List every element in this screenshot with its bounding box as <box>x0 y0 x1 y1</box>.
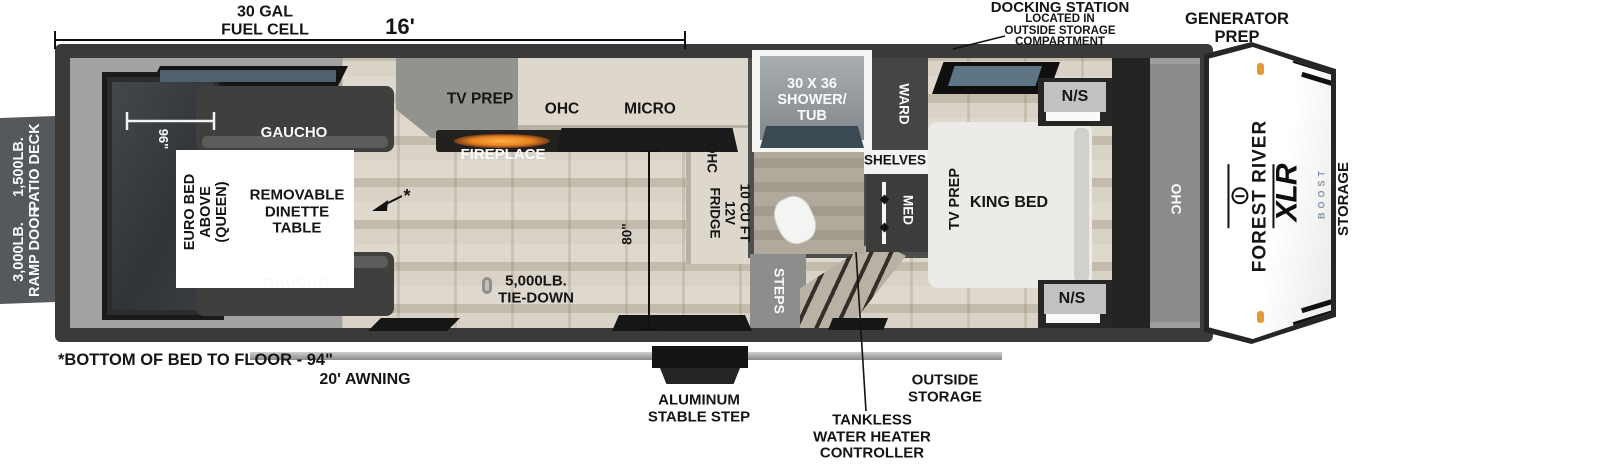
kitchen-overhead-cabinets <box>518 58 750 132</box>
bedroom-wardrobe <box>1112 58 1150 328</box>
medicine-cabinet <box>866 174 928 252</box>
dinette-label: REMOVABLE DINETTE TABLE <box>250 187 345 237</box>
tie-down-label: 5,000LB. TIE-DOWN <box>498 274 574 307</box>
stable-step-label: ALUMINUM STABLE STEP <box>648 393 750 426</box>
bed-floor-note: *BOTTOM OF BED TO FLOOR - 94" <box>58 351 333 369</box>
nightstand-strip <box>1046 314 1100 323</box>
garage-window-glass <box>160 70 336 82</box>
model-trim: BOOST <box>1318 165 1327 222</box>
bedroom-tv-screen <box>948 66 1042 86</box>
length-dimension-label: 16' <box>385 15 415 39</box>
kitchen-ohc-label: OHC <box>545 100 579 117</box>
med-label: MED <box>900 195 915 225</box>
tankless-label: TANKLESS WATER HEATER CONTROLLER <box>813 412 931 462</box>
gaucho-sofa-top <box>196 86 394 152</box>
window <box>828 318 888 330</box>
floorplan-diagram: FOREST RIVER XLR BOOST 30 GAL FUEL CELL … <box>0 0 1600 465</box>
outside-storage-label: OUTSIDE STORAGE <box>908 373 982 406</box>
dinette-note-marker: * <box>403 187 410 207</box>
awning-rail <box>250 352 1002 360</box>
gaucho-top-label: GAUCHO <box>261 125 328 142</box>
awning-label: 20' AWNING <box>319 371 410 389</box>
patio-deck-label: 1,500LB. PATIO DECK <box>12 123 44 210</box>
nightstand-top-label: N/S <box>1062 88 1089 106</box>
bedroom-ohc-label: OHC <box>1168 183 1183 214</box>
clearance-light-icon <box>1257 63 1264 75</box>
model-logo: XLR BOOST <box>1256 165 1345 222</box>
shelves-label: SHELVES <box>864 154 926 169</box>
tv-prep-bedroom-label: TV PREP <box>948 168 964 230</box>
aluminum-step <box>652 346 748 368</box>
window <box>368 318 460 331</box>
steps-label: STEPS <box>771 268 786 314</box>
ward-label: WARD <box>896 83 911 124</box>
nightstand-strip <box>1046 112 1100 121</box>
entry-door-mat <box>612 315 752 331</box>
tub-edge <box>760 126 864 148</box>
forest-river-emblem-icon <box>1231 188 1248 205</box>
tv-prep-living-label: TV PREP <box>447 90 513 107</box>
bed-pillows <box>1074 128 1089 282</box>
garage-width-label: 96" <box>156 129 170 150</box>
clearance-light-icon <box>1257 311 1264 323</box>
king-bed-label: KING BED <box>970 194 1048 212</box>
shower-label: 30 X 36 SHOWER/ TUB <box>777 77 846 125</box>
pantry-ohc-label: OHC <box>704 143 719 173</box>
front-storage-label: STORAGE <box>1336 162 1353 236</box>
medicine-cabinet-rail <box>882 182 886 244</box>
docking-station-detail: LOCATED IN OUTSIDE STORAGE COMPARTMENT <box>1005 14 1116 49</box>
ramp-door-label: 3,000LB. RAMP DOOR <box>12 207 44 297</box>
gaucho-bottom-label: GAUCHO <box>263 276 330 293</box>
aluminum-step-lip <box>660 368 740 384</box>
cargo-height-label: 80" <box>621 223 636 244</box>
micro-label: MICRO <box>624 100 676 117</box>
fireplace-label: FIREPLACE <box>460 147 545 164</box>
logo-rule <box>1227 164 1229 228</box>
generator-prep-label: GENERATOR PREP <box>1185 10 1289 46</box>
fuel-cell-label: 30 GAL FUEL CELL <box>221 3 309 38</box>
nightstand-bottom-label: N/S <box>1059 290 1086 308</box>
tie-down-anchor-icon <box>482 277 492 294</box>
model-name: XLR <box>1273 165 1300 222</box>
fridge-label: 10 CU FT 12V FRIDGE <box>707 184 752 243</box>
euro-bed-label: EURO BED ABOVE (QUEEN) <box>183 174 231 251</box>
